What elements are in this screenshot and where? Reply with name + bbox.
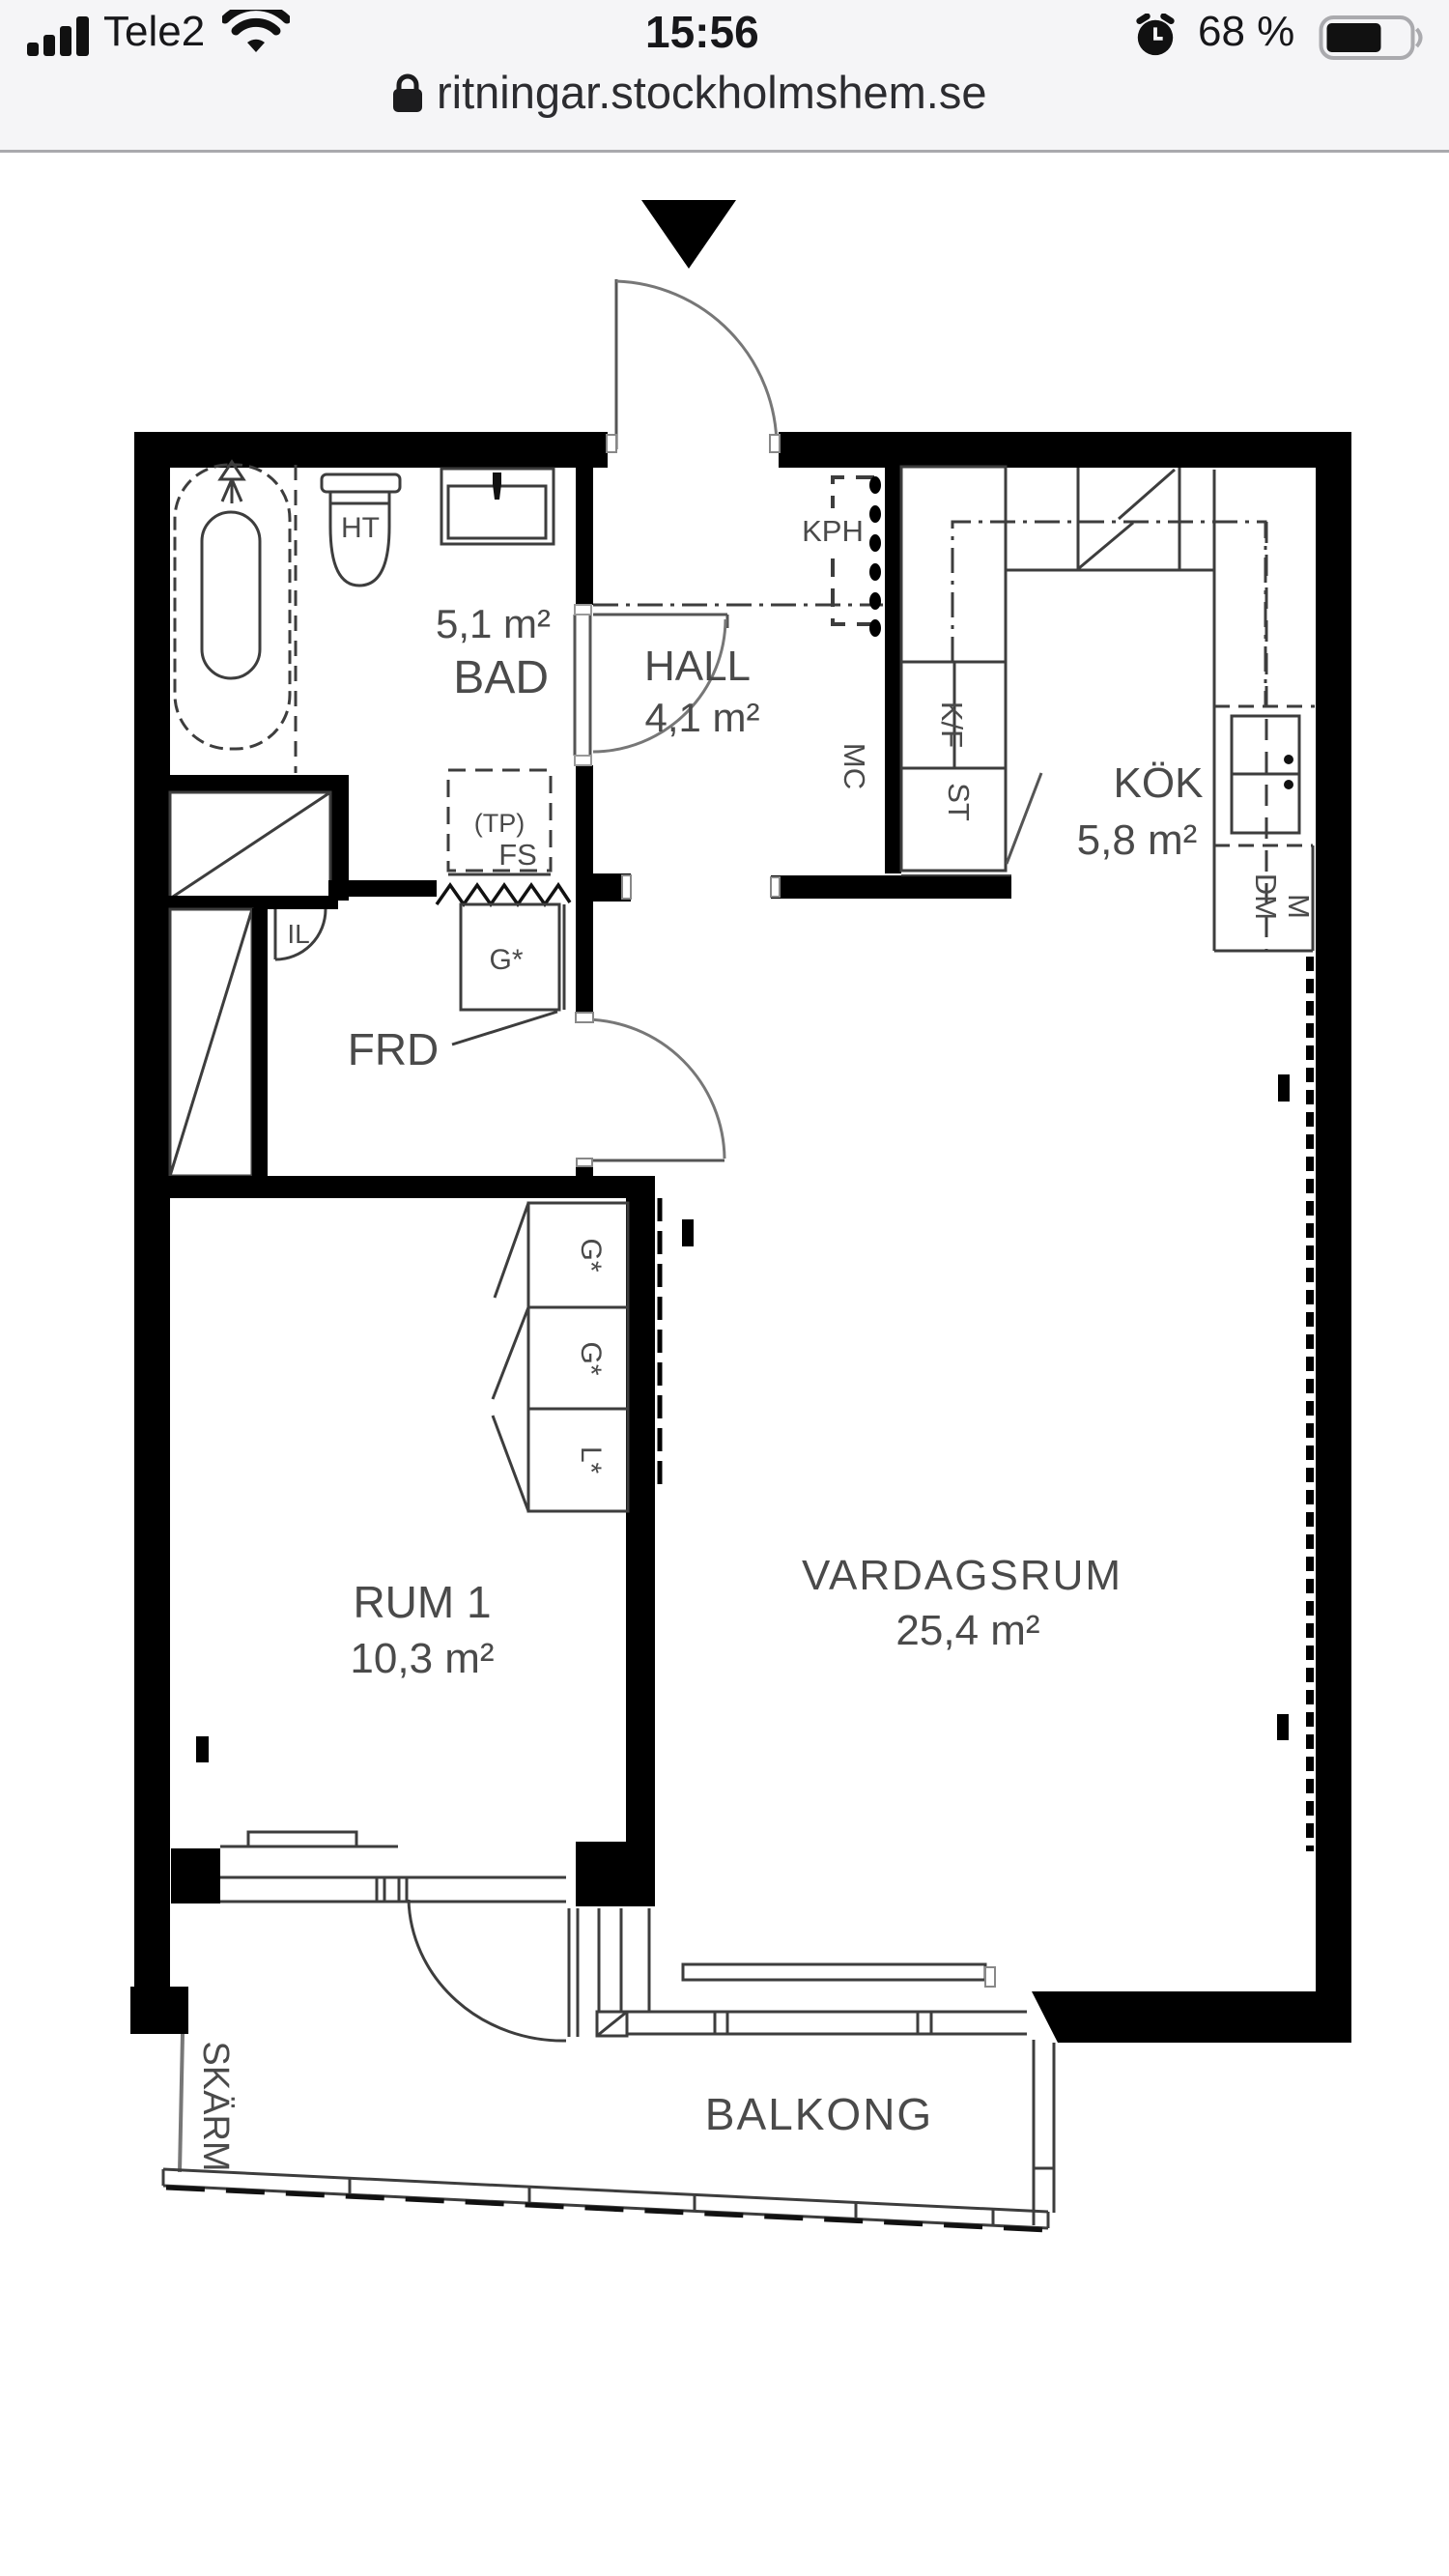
svg-text:(TP): (TP): [474, 809, 525, 838]
svg-text:G*: G*: [575, 1238, 607, 1272]
svg-text:4,1 m²: 4,1 m²: [644, 695, 759, 740]
svg-text:SKÄRM: SKÄRM: [195, 2041, 236, 2171]
svg-text:VARDAGSRUM: VARDAGSRUM: [802, 1552, 1122, 1599]
svg-text:5,1 m²: 5,1 m²: [436, 601, 551, 646]
svg-text:BAD: BAD: [453, 652, 549, 703]
svg-text:G*: G*: [489, 944, 523, 976]
svg-text:10,3 m²: 10,3 m²: [350, 1635, 494, 1682]
svg-text:BALKONG: BALKONG: [705, 2089, 933, 2139]
svg-text:K/F: K/F: [935, 701, 969, 748]
svg-text:L*: L*: [575, 1446, 607, 1474]
svg-text:KPH: KPH: [802, 514, 864, 548]
svg-text:M: M: [1282, 894, 1316, 919]
svg-text:25,4 m²: 25,4 m²: [895, 1607, 1039, 1654]
svg-text:RUM 1: RUM 1: [353, 1577, 491, 1627]
svg-text:MC: MC: [838, 743, 871, 789]
svg-text:G*: G*: [575, 1341, 607, 1375]
svg-text:IL: IL: [287, 919, 309, 949]
svg-text:DM: DM: [1249, 873, 1283, 920]
svg-text:FS: FS: [498, 838, 537, 872]
svg-text:ST: ST: [942, 783, 976, 821]
svg-text:FRD: FRD: [348, 1024, 440, 1074]
svg-text:KÖK: KÖK: [1114, 759, 1204, 807]
svg-text:5,8 m²: 5,8 m²: [1077, 816, 1198, 864]
svg-text:HALL: HALL: [644, 643, 751, 690]
svg-text:HT: HT: [341, 512, 380, 544]
